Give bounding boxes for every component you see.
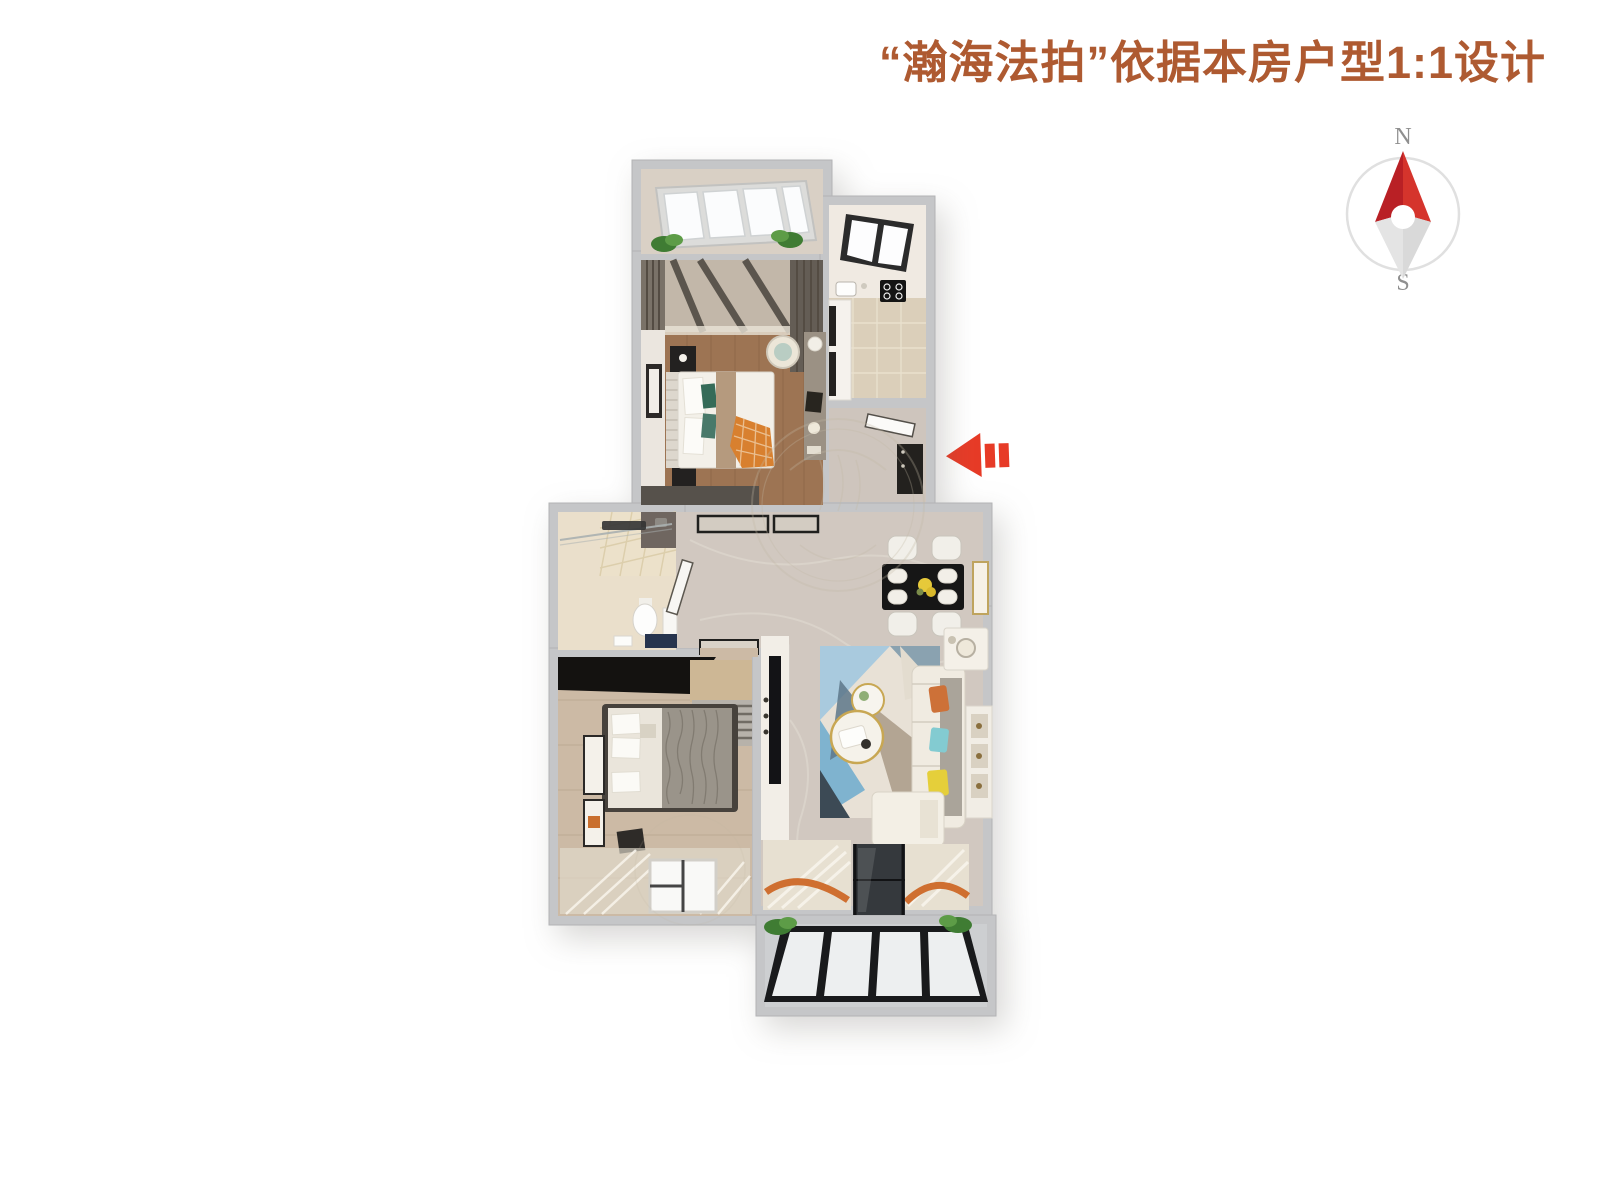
second-bed [602, 704, 738, 812]
floor-plan [0, 0, 1600, 1200]
dining-chair [932, 536, 961, 560]
vanity [645, 634, 677, 648]
pillow [640, 724, 656, 738]
pillow [928, 685, 949, 713]
sink [836, 282, 856, 296]
pillow [612, 738, 641, 759]
dining-chair [888, 612, 917, 636]
pillow [701, 383, 717, 408]
desk-unit [804, 332, 826, 460]
tv-screen [769, 656, 781, 784]
pillow [929, 727, 949, 753]
balcony-doorway [853, 844, 905, 915]
south-balcony [764, 915, 988, 1002]
shelf-unit [966, 706, 992, 818]
duvet [662, 708, 732, 808]
pillow [701, 413, 717, 438]
nightstand [672, 466, 696, 488]
wall-art [584, 736, 604, 794]
toilet [633, 604, 657, 636]
page: “瀚海法拍”依据本房户型1:1设计 N S [0, 0, 1600, 1200]
pillow [611, 713, 640, 734]
door-threshold [698, 516, 768, 532]
master-bed [666, 372, 774, 468]
wall-art [973, 562, 988, 614]
stove [880, 280, 906, 302]
dresser [641, 486, 759, 505]
bed-runner [716, 372, 736, 468]
pillow [683, 377, 705, 414]
table-lamp [957, 639, 975, 657]
shoe-cabinet [897, 444, 923, 494]
side-table [944, 628, 988, 670]
door-threshold [774, 516, 818, 532]
pillow [612, 772, 641, 793]
ceiling-light [602, 521, 646, 530]
shower-marble-wall [641, 512, 676, 548]
north-balcony [651, 181, 816, 252]
towel [614, 636, 632, 646]
